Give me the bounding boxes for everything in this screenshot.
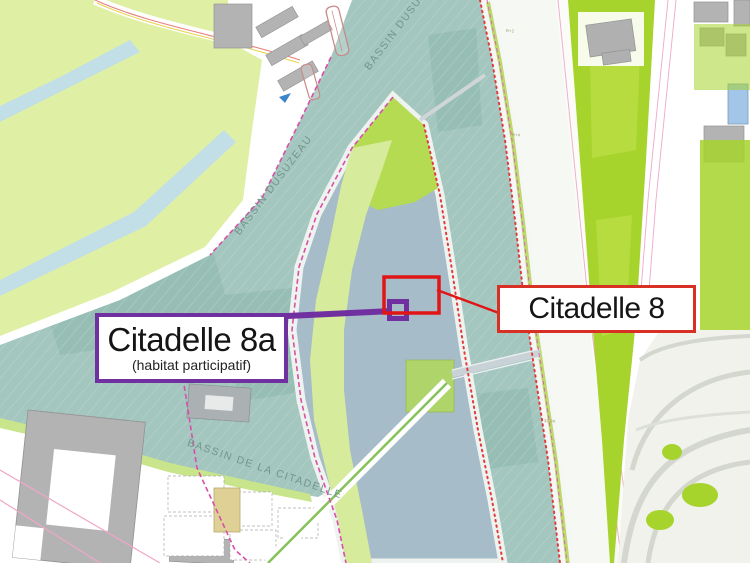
tan-building: [214, 488, 240, 532]
map-annotation-figure: BASSIN DUSUZEAU BASSIN DUSUZEAU BASSIN D…: [0, 0, 750, 563]
citadelle-8-callout: Citadelle 8: [497, 285, 696, 333]
blue-arrow-marker: [279, 93, 291, 103]
citadelle-8a-subtitle: (habitat participatif): [132, 357, 251, 373]
parcel-annotation: 32 PA: [544, 418, 556, 424]
parcel-annotation: R+4: [512, 132, 521, 137]
parcel-annotation: R+2: [506, 28, 515, 33]
citadelle-8-title: Citadelle 8: [528, 294, 664, 324]
east-green-strip: [700, 140, 750, 350]
citadelle-8a-callout: Citadelle 8a (habitat participatif): [95, 313, 288, 383]
road-interchange: [618, 330, 750, 563]
large-barge: [187, 384, 251, 422]
citadelle-8a-title: Citadelle 8a: [107, 323, 275, 356]
city-plan-map: BASSIN DUSUZEAU BASSIN DUSUZEAU BASSIN D…: [0, 0, 750, 563]
